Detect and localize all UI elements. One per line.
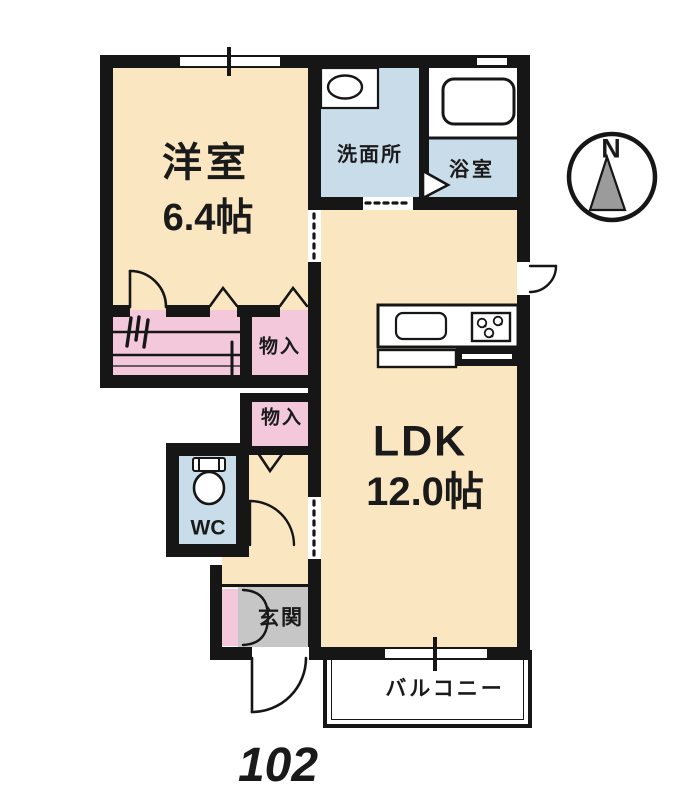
western-room-label: 洋室	[162, 143, 250, 183]
wall-left	[100, 55, 113, 388]
closet-strip-floor	[105, 310, 246, 380]
ldk-label: LDK	[373, 421, 467, 464]
unit-number-label: 102	[238, 742, 318, 790]
washroom-label: 洗面所	[337, 145, 403, 165]
floor-plan: 洋室 6.4帖 洗面所 浴室 LDK 12.0帖 物入 物入 WC 玄関 バルコ…	[0, 0, 700, 807]
entrance-door-icon	[252, 658, 306, 712]
wall-westroom-bottom-a	[100, 305, 130, 317]
entrance-door-gap	[252, 647, 309, 660]
sliding-door-gap-upper	[308, 210, 321, 262]
hallway-lower-floor	[222, 553, 317, 588]
washroom-door-gap	[363, 197, 413, 210]
washroom-floor	[317, 60, 423, 207]
sliding-door-gap-lower	[308, 497, 321, 559]
wc-wall-bottom	[166, 544, 249, 557]
wall-storage2-top	[240, 393, 321, 402]
wall-lower-left	[210, 565, 222, 660]
ldk-side-door-gap	[517, 262, 530, 295]
bathroom-label: 浴室	[449, 160, 495, 180]
wall-storage1-left	[240, 305, 252, 388]
western-room-size-label: 6.4帖	[163, 199, 254, 237]
wall-center-vertical	[308, 55, 321, 660]
balcony-label: バルコニー	[385, 679, 505, 700]
wc-wall-right	[236, 443, 249, 557]
wall-bath-divider	[419, 62, 429, 207]
entrance-label: 玄関	[258, 608, 304, 629]
wc-label: WC	[191, 518, 226, 539]
ldk-side-door-icon	[530, 266, 556, 292]
wall-right	[517, 55, 530, 660]
entrance-top-line	[222, 584, 317, 587]
compass-north-label: N	[601, 136, 621, 163]
wall-wetrooms-bottom	[308, 197, 530, 210]
bathroom-tub-area	[423, 60, 523, 138]
western-room-window-tick	[227, 47, 231, 76]
balcony-window-tick	[433, 637, 437, 671]
wall-strip-bottom	[100, 375, 321, 388]
western-room-floor	[105, 60, 317, 312]
bathroom-window	[477, 56, 507, 67]
shoe-cabinet-floor	[222, 589, 238, 646]
wall-storage2-bottom	[240, 446, 321, 455]
storage2-label: 物入	[261, 409, 303, 428]
wc-wall-left	[166, 443, 179, 557]
ldk-size-label: 12.0帖	[366, 472, 484, 512]
compass-needle-icon	[590, 157, 625, 210]
wall-westroom-bottom-b	[166, 305, 210, 317]
storage1-label: 物入	[259, 338, 301, 357]
